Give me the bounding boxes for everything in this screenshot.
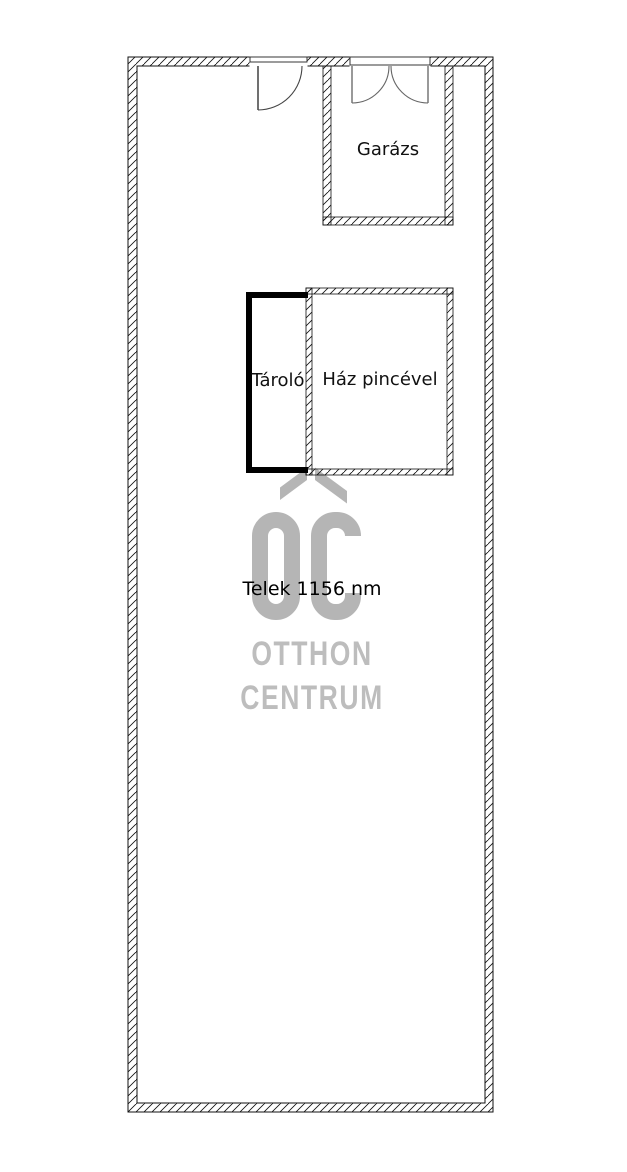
floorplan-page: Garázs Tároló Ház pincével Telek 1156 nm… — [0, 0, 627, 1172]
plot-area-label: Telek 1156 nm — [196, 577, 428, 601]
gate-threshold — [250, 57, 307, 62]
watermark-brand-line2: CENTRUM — [215, 681, 410, 715]
room-label-house: Ház pincével — [300, 369, 460, 391]
room-label-garage: Garázs — [308, 139, 468, 161]
watermark-brand-line1: OTTHON — [215, 637, 410, 671]
garage-threshold — [350, 57, 430, 65]
